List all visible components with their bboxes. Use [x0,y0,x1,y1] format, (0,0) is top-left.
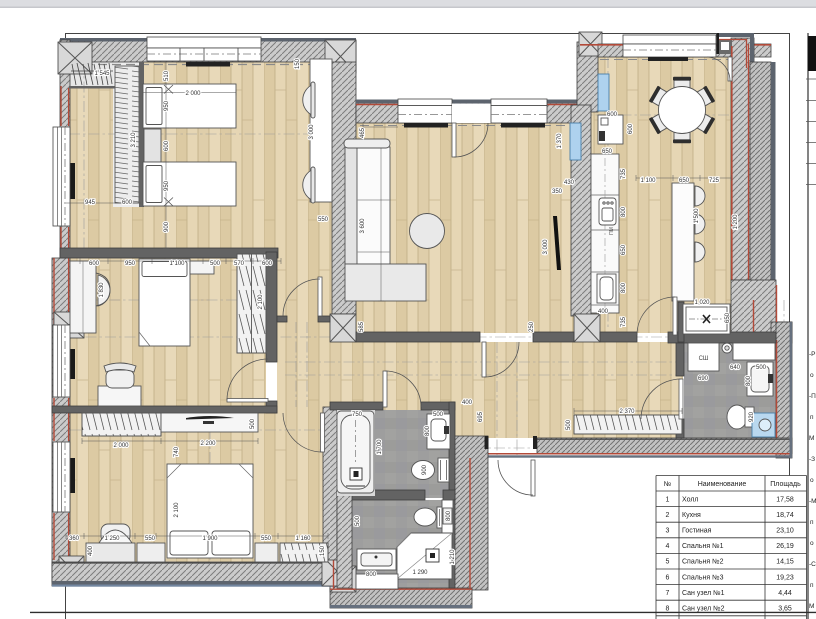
svg-text:3: 3 [666,528,670,535]
svg-text:-М: -М [809,498,816,505]
svg-text:-С: -С [809,561,816,568]
svg-text:Кухня: Кухня [682,512,701,519]
svg-text:1 160: 1 160 [295,536,311,542]
svg-text:150: 150 [320,545,326,556]
svg-text:Холл: Холл [682,496,699,503]
svg-text:570: 570 [234,261,245,267]
svg-text:1 200: 1 200 [733,214,739,230]
svg-text:Гостиная: Гостиная [682,528,712,535]
svg-text:п: п [810,519,814,526]
svg-text:550: 550 [145,536,156,542]
svg-text:750: 750 [352,412,363,418]
svg-text:14,15: 14,15 [776,559,794,566]
svg-text:-Р: -Р [809,351,816,358]
svg-text:ПМ: ПМ [609,227,615,235]
svg-text:3 000: 3 000 [543,239,549,255]
svg-text:2: 2 [666,512,670,519]
svg-text:650: 650 [621,244,627,255]
svg-text:Наименование: Наименование [698,481,747,488]
svg-text:3 000: 3 000 [309,124,315,140]
svg-text:400: 400 [88,545,94,556]
svg-text:400: 400 [462,400,473,406]
svg-text:17,58: 17,58 [776,496,794,503]
svg-text:1 830: 1 830 [99,282,105,298]
svg-text:500: 500 [250,418,256,429]
svg-text:800: 800 [366,572,377,578]
svg-text:18,74: 18,74 [776,512,794,519]
svg-text:1 700: 1 700 [377,439,383,455]
svg-text:1 100: 1 100 [169,261,185,267]
svg-text:1 250: 1 250 [104,536,120,542]
svg-text:500: 500 [756,365,767,371]
svg-text:1 020: 1 020 [694,300,710,306]
svg-text:№: № [664,481,672,488]
svg-text:735: 735 [621,168,627,179]
svg-text:2 000: 2 000 [113,443,129,449]
svg-text:725: 725 [709,178,720,184]
svg-text:150: 150 [295,58,301,69]
svg-text:510: 510 [164,70,170,81]
svg-text:690: 690 [698,376,709,382]
svg-text:400: 400 [598,309,609,315]
svg-text:600: 600 [262,261,273,267]
svg-text:4,44: 4,44 [778,590,792,597]
svg-text:Сан узел №2: Сан узел №2 [682,606,725,613]
svg-text:2 200: 2 200 [200,441,216,447]
svg-text:500: 500 [210,261,221,267]
svg-text:19,23: 19,23 [776,574,794,581]
svg-text:1 900: 1 900 [202,536,218,542]
svg-text:-З: -З [809,456,815,463]
svg-text:3 600: 3 600 [360,218,366,234]
svg-text:1 290: 1 290 [412,570,428,576]
svg-text:500: 500 [355,515,361,526]
svg-text:640: 640 [730,365,741,371]
svg-text:920: 920 [749,411,755,422]
svg-text:Сан узел №1: Сан узел №1 [682,590,725,597]
svg-text:900: 900 [164,221,170,232]
svg-text:1 370: 1 370 [557,133,563,149]
svg-text:о: о [810,540,814,547]
svg-text:800: 800 [425,425,431,436]
svg-text:360: 360 [69,536,80,542]
svg-text:900: 900 [422,464,428,475]
svg-text:Спальня №3: Спальня №3 [682,574,724,581]
svg-text:800: 800 [621,206,627,217]
svg-text:465: 465 [360,127,366,138]
svg-text:2 000: 2 000 [185,91,201,97]
svg-text:26,19: 26,19 [776,543,794,550]
svg-text:3 210: 3 210 [131,132,137,148]
svg-text:945: 945 [85,200,96,206]
svg-text:800: 800 [446,510,452,521]
svg-text:2 370: 2 370 [619,409,635,415]
svg-text:о: о [810,477,814,484]
svg-text:8: 8 [666,606,670,613]
svg-text:5: 5 [666,559,670,566]
svg-text:23,10: 23,10 [776,528,794,535]
svg-text:800: 800 [621,282,627,293]
svg-text:2 100: 2 100 [174,502,180,518]
svg-text:740: 740 [174,446,180,457]
svg-text:Спальня №1: Спальня №1 [682,543,724,550]
svg-text:600: 600 [122,200,133,206]
svg-text:-П: -П [809,393,816,400]
svg-text:650: 650 [725,312,731,323]
svg-text:1 500: 1 500 [694,208,700,224]
svg-text:о: о [810,372,814,379]
svg-text:Площадь: Площадь [770,481,801,488]
svg-text:1: 1 [666,496,670,503]
svg-text:п: п [810,582,814,589]
svg-text:800: 800 [746,375,752,386]
svg-text:650: 650 [602,149,613,155]
svg-text:4: 4 [666,543,670,550]
svg-text:550: 550 [261,536,272,542]
svg-text:250: 250 [529,321,535,332]
svg-text:1 545: 1 545 [94,71,110,77]
svg-text:600: 600 [607,112,618,118]
svg-text:585: 585 [359,321,365,332]
svg-text:600: 600 [89,261,100,267]
svg-text:950: 950 [164,100,170,111]
svg-text:Спальня №2: Спальня №2 [682,559,724,566]
svg-text:3,65: 3,65 [778,606,792,613]
svg-text:430: 430 [564,180,575,186]
svg-text:735: 735 [621,316,627,327]
svg-text:600: 600 [628,123,634,134]
svg-text:550: 550 [318,217,329,223]
svg-text:1 100: 1 100 [640,178,656,184]
svg-text:600: 600 [164,140,170,151]
svg-text:500: 500 [433,412,444,418]
svg-text:2 100: 2 100 [258,294,264,310]
svg-text:СШ: СШ [699,356,709,362]
svg-text:7: 7 [666,590,670,597]
svg-text:650: 650 [679,178,690,184]
svg-text:М: М [809,435,814,442]
svg-text:п: п [810,414,814,421]
svg-text:1 210: 1 210 [450,549,456,565]
svg-text:350: 350 [552,189,563,195]
svg-text:950: 950 [164,180,170,191]
svg-text:500: 500 [566,419,572,430]
svg-text:950: 950 [125,261,136,267]
svg-text:695: 695 [478,411,484,422]
svg-text:М: М [809,603,814,610]
svg-text:6: 6 [666,574,670,581]
